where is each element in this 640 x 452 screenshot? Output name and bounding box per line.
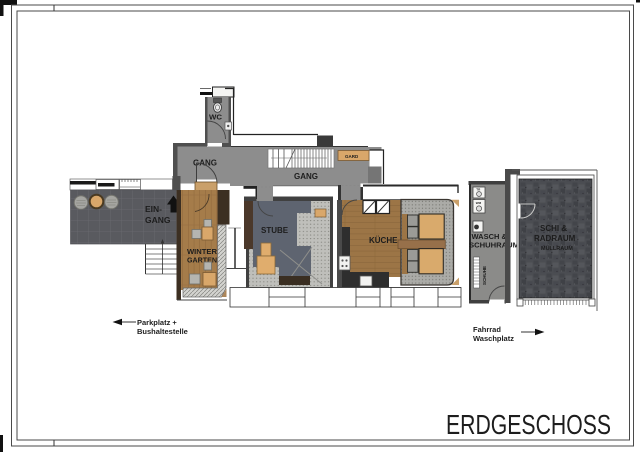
svg-text:EIN-: EIN-: [145, 204, 162, 214]
svg-text:Parkplatz +: Parkplatz +: [137, 318, 177, 327]
svg-text:SCHUHE: SCHUHE: [482, 266, 487, 285]
svg-text:GANG: GANG: [294, 172, 318, 181]
svg-text:Fahrrad: Fahrrad: [473, 325, 501, 334]
svg-text:STUBE: STUBE: [261, 226, 289, 235]
svg-text:MÜLLRAUM: MÜLLRAUM: [541, 245, 573, 252]
svg-text:Waschplatz: Waschplatz: [473, 334, 514, 343]
svg-text:SCHUHRAUM: SCHUHRAUM: [469, 241, 519, 250]
svg-text:RADRAUM: RADRAUM: [534, 234, 576, 243]
svg-text:ERDGESCHOSS: ERDGESCHOSS: [446, 409, 611, 440]
svg-text:SCHI &: SCHI &: [540, 224, 567, 233]
svg-text:WM: WM: [476, 201, 482, 205]
svg-text:Bushaltestelle: Bushaltestelle: [137, 327, 188, 336]
svg-text:GANG: GANG: [145, 215, 171, 225]
svg-text:GARD: GARD: [345, 154, 359, 159]
svg-text:KÜCHE: KÜCHE: [369, 236, 398, 245]
svg-text:GARTEN: GARTEN: [187, 256, 217, 265]
svg-text:WC: WC: [209, 113, 223, 122]
